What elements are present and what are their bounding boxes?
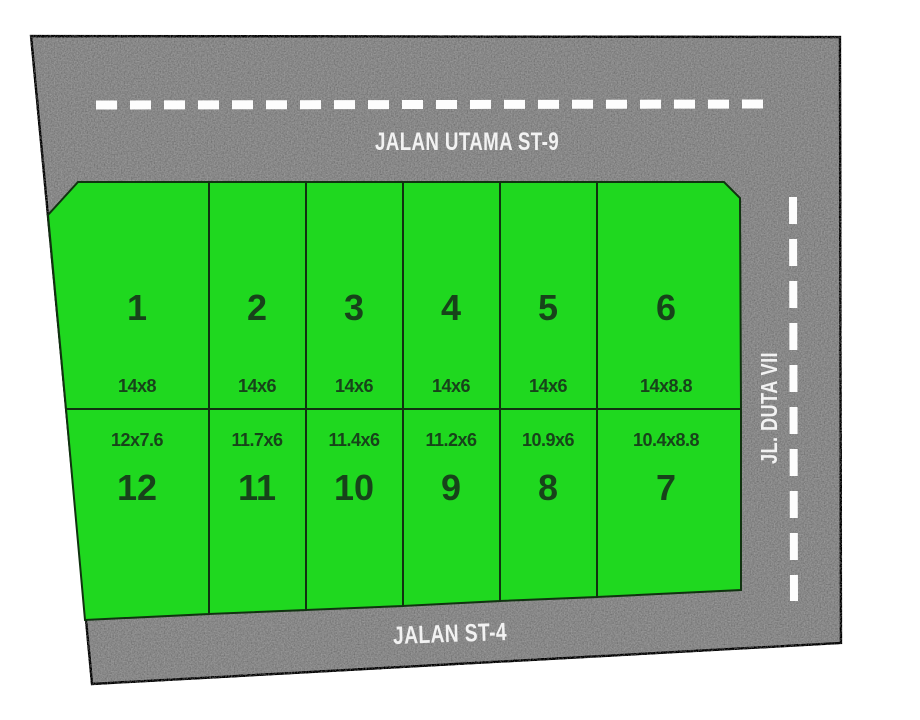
plot-number-8: 8 <box>538 467 558 508</box>
plot-size-2: 14x6 <box>238 376 277 396</box>
site-plan-canvas: JALAN UTAMA ST-9 JALAN ST-4 JL. DUTA VII… <box>0 0 920 720</box>
plot-number-1: 1 <box>127 287 147 328</box>
plot-size-12: 12x7.6 <box>111 430 164 450</box>
plot-size-11: 11.7x6 <box>231 430 283 450</box>
plot-number-5: 5 <box>538 287 558 328</box>
plot-size-10: 11.4x6 <box>328 430 380 450</box>
plot-size-9: 11.2x6 <box>425 430 477 450</box>
top-road-label: JALAN UTAMA ST-9 <box>375 128 559 156</box>
plot-number-2: 2 <box>247 287 267 328</box>
plot-size-8: 10.9x6 <box>522 430 575 450</box>
bottom-road-label: JALAN ST-4 <box>393 618 508 650</box>
right-road-label: JL. DUTA VII <box>756 352 782 464</box>
plot-number-10: 10 <box>334 467 374 508</box>
plot-number-11: 11 <box>238 467 276 508</box>
plot-number-9: 9 <box>441 467 461 508</box>
plot-row-bottom: 12x7.6 11.7x6 11.4x6 11.2x6 10.9x6 10.4x… <box>66 409 741 620</box>
plot-size-5: 14x6 <box>529 376 568 396</box>
plot-size-6: 14x8.8 <box>640 376 693 396</box>
plot-row-top: 1 2 3 4 5 6 14x8 14x6 14x6 14x6 14x6 14x… <box>48 182 741 409</box>
plot-size-1: 14x8 <box>118 376 157 396</box>
plot-size-3: 14x6 <box>335 376 374 396</box>
plot-number-4: 4 <box>441 287 461 328</box>
plot-number-12: 12 <box>117 467 157 508</box>
plot-size-4: 14x6 <box>432 376 471 396</box>
plot-number-3: 3 <box>344 287 364 328</box>
site-plan-drawing: JALAN UTAMA ST-9 JALAN ST-4 JL. DUTA VII… <box>0 0 920 720</box>
plot-number-7: 7 <box>656 467 676 508</box>
plot-number-6: 6 <box>656 287 676 328</box>
plot-size-7: 10.4x8.8 <box>633 430 700 450</box>
